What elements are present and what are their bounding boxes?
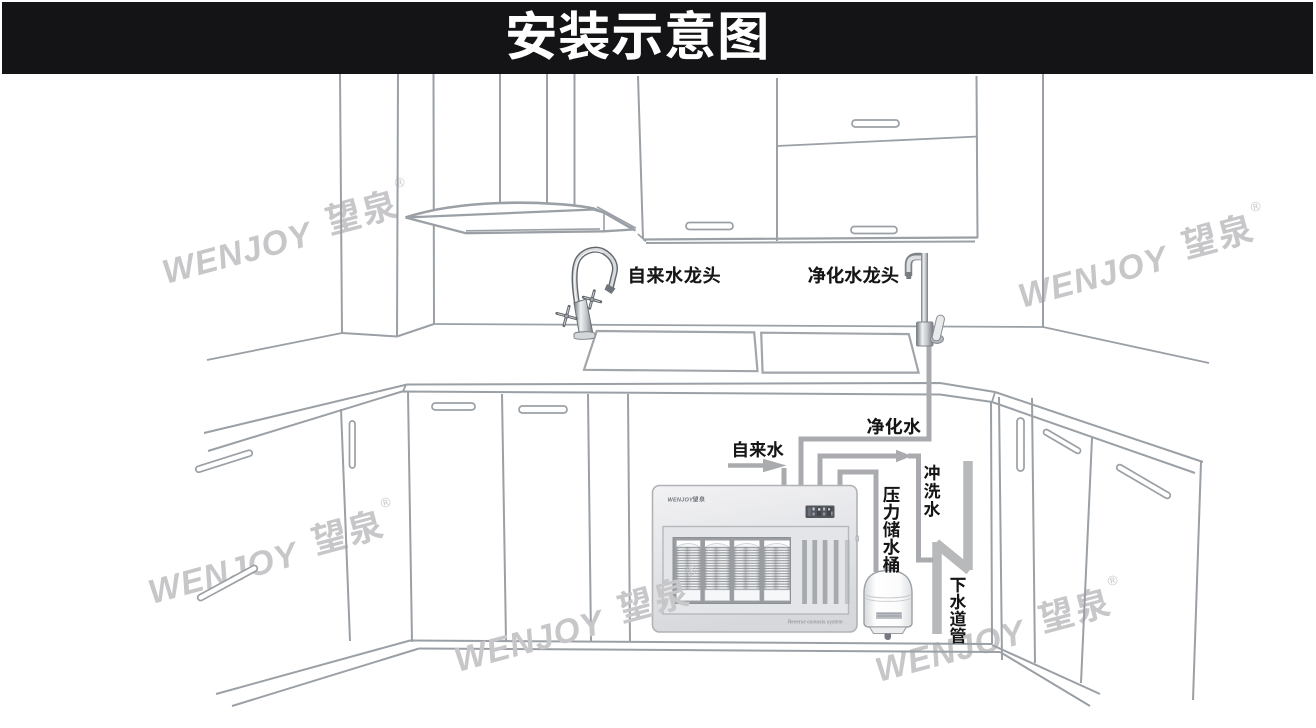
svg-text:WENJOY: WENJOY <box>668 497 695 503</box>
svg-text:Reverse osmosis system: Reverse osmosis system <box>788 620 843 626</box>
